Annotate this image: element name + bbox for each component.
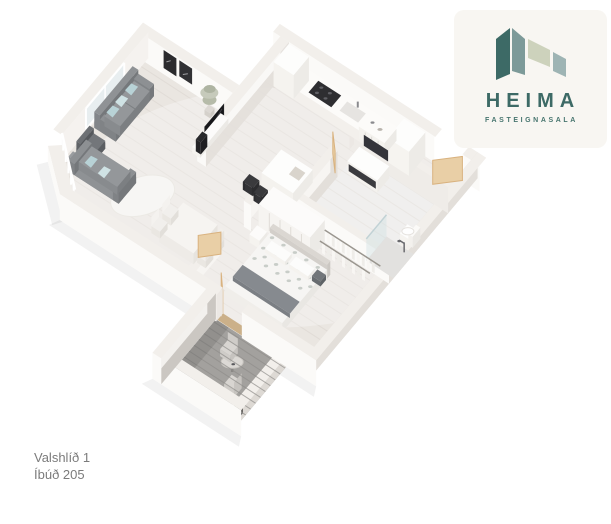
shower-head — [397, 240, 401, 242]
hanging-clothes — [337, 253, 340, 265]
hanging-clothes — [322, 243, 325, 255]
agency-logo-card: HEIMA FASTEIGNASALA — [454, 10, 607, 148]
hanging-clothes — [332, 250, 335, 262]
logo-shape-3 — [528, 39, 550, 67]
hanging-clothes — [332, 236, 335, 248]
hanging-clothes — [327, 247, 330, 259]
hanging-clothes — [362, 255, 365, 267]
hanging-clothes — [357, 252, 360, 264]
hanging-clothes — [347, 260, 350, 272]
heima-logo-icon — [492, 25, 570, 81]
agency-name: HEIMA — [454, 90, 607, 113]
logo-shape-4 — [553, 52, 566, 77]
floorplan-page: HEIMA FASTEIGNASALA Valshlíð 1 Íbúð 205 — [0, 0, 611, 524]
hanging-clothes — [352, 263, 355, 275]
hanging-clothes — [357, 266, 360, 278]
hanging-clothes — [352, 249, 355, 261]
bedroom-door — [198, 232, 221, 257]
hanging-clothes — [342, 256, 345, 268]
logo-shape-2 — [512, 28, 525, 75]
hanging-clothes — [362, 269, 365, 281]
hanging-clothes — [337, 239, 340, 251]
entry-door — [433, 157, 463, 185]
hanging-clothes — [342, 242, 345, 254]
hanging-clothes — [327, 232, 330, 244]
hanging-clothes — [372, 262, 375, 274]
address-line: Valshlíð 1 — [34, 449, 90, 466]
agency-subtitle: FASTEIGNASALA — [454, 117, 607, 124]
listing-caption: Valshlíð 1 Íbúð 205 — [34, 449, 90, 483]
logo-shape-1 — [496, 28, 510, 80]
apartment-line: Íbúð 205 — [34, 466, 90, 483]
hanging-clothes — [367, 258, 370, 270]
hanging-clothes — [347, 245, 350, 257]
